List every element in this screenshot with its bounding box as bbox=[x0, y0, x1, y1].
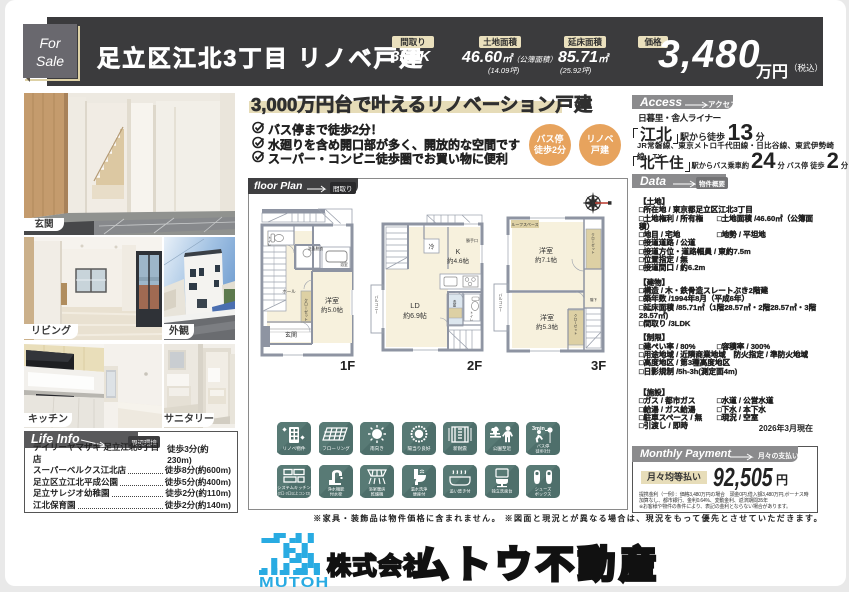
svg-text:勝手口: 勝手口 bbox=[466, 237, 478, 243]
svg-text:リノベ物件: リノベ物件 bbox=[283, 445, 306, 452]
svg-text:約5.3帖: 約5.3帖 bbox=[536, 322, 559, 331]
svg-text:陽当り良好: 陽当り良好 bbox=[407, 445, 430, 452]
svg-text:ボックス: ボックス bbox=[535, 491, 552, 498]
svg-text:南向き: 南向き bbox=[370, 445, 384, 451]
svg-text:バルコニー: バルコニー bbox=[374, 294, 379, 314]
svg-text:乾燥機: 乾燥機 bbox=[371, 491, 384, 498]
svg-text:洋室: 洋室 bbox=[540, 313, 554, 322]
svg-text:LD: LD bbox=[410, 301, 420, 310]
svg-text:MUTOH: MUTOH bbox=[259, 574, 330, 589]
svg-text:バルコニー: バルコニー bbox=[498, 292, 503, 312]
svg-text:トイレ: トイレ bbox=[469, 311, 474, 322]
svg-text:クローゼット: クローゼット bbox=[590, 232, 595, 254]
svg-text:玄関: 玄関 bbox=[285, 331, 297, 339]
svg-text:洗面脱衣: 洗面脱衣 bbox=[308, 246, 323, 251]
svg-text:ルーフスペース: ルーフスペース bbox=[511, 221, 538, 227]
svg-text:約4.6帖: 約4.6帖 bbox=[447, 256, 470, 265]
svg-text:クローゼット: クローゼット bbox=[573, 313, 578, 335]
svg-text:ホール: ホール bbox=[282, 289, 296, 294]
svg-text:クローゼット: クローゼット bbox=[303, 298, 308, 321]
svg-text:(2口·3口以上コンロ): (2口·3口以上コンロ) bbox=[278, 491, 311, 496]
svg-text:冷: 冷 bbox=[428, 243, 434, 251]
svg-text:洋室: 洋室 bbox=[325, 296, 339, 305]
svg-text:フローリング: フローリング bbox=[322, 445, 350, 452]
svg-text:公園至近: 公園至近 bbox=[492, 445, 511, 452]
svg-text:約5.0帖: 約5.0帖 bbox=[321, 305, 344, 314]
svg-text:便座付: 便座付 bbox=[412, 491, 425, 498]
svg-text:約7.1帖: 約7.1帖 bbox=[535, 255, 558, 264]
svg-text:洗面: 洗面 bbox=[452, 299, 457, 308]
svg-text:付水栓: 付水栓 bbox=[329, 491, 342, 498]
svg-text:新耐震: 新耐震 bbox=[453, 445, 467, 452]
svg-text:トイレ: トイレ bbox=[267, 236, 272, 247]
svg-text:徒歩3分: 徒歩3分 bbox=[536, 448, 552, 455]
svg-text:独立洗面台: 独立洗面台 bbox=[491, 488, 512, 495]
svg-text:追い焚き付: 追い焚き付 bbox=[450, 488, 471, 495]
svg-text:約6.9帖: 約6.9帖 bbox=[403, 311, 427, 320]
svg-text:階下: 階下 bbox=[590, 297, 598, 302]
svg-text:K: K bbox=[456, 249, 461, 256]
svg-text:洋室: 洋室 bbox=[539, 246, 553, 255]
svg-text:浴室: 浴室 bbox=[340, 262, 348, 267]
